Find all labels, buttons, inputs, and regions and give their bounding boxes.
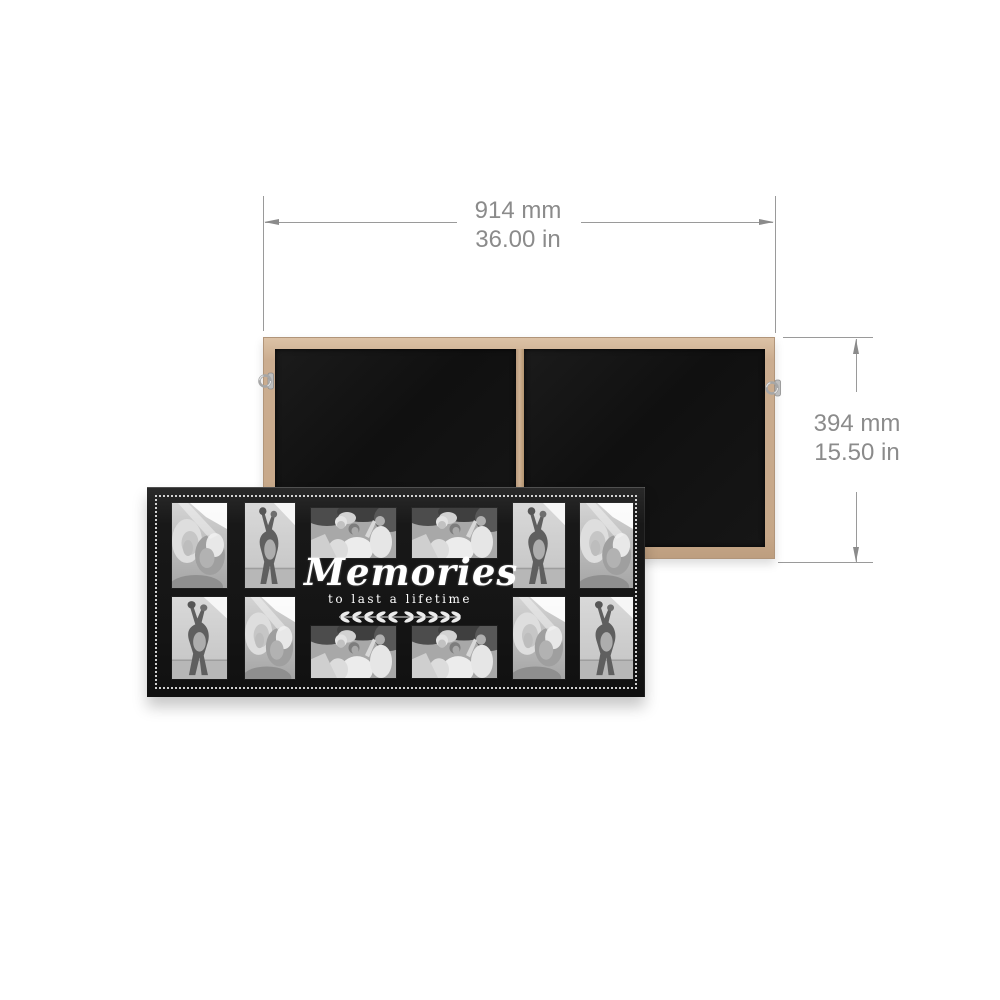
- height-label: 394 mm 15.50 in: [797, 409, 917, 467]
- photo-family: [412, 626, 497, 678]
- width-dimension-line-right: [581, 222, 773, 223]
- dancing-couple-photo-icon: [245, 503, 295, 588]
- two-women-photo-icon: [580, 503, 633, 588]
- height-arrow-down-icon: [853, 547, 859, 562]
- height-extension-line-top: [783, 337, 873, 338]
- frame-front-view: Memories to last a lifetime: [147, 487, 645, 697]
- height-metric: 394 mm: [797, 409, 917, 438]
- laurel-flourish-icon: [333, 609, 467, 625]
- dancing-couple-photo-icon: [172, 597, 227, 679]
- width-imperial: 36.00 in: [428, 225, 608, 254]
- photo-two-women: [172, 503, 227, 588]
- photo-two-women: [245, 597, 295, 679]
- photo-family: [311, 626, 396, 678]
- photo-two-women: [580, 503, 633, 588]
- photo-dancing-couple: [513, 503, 565, 588]
- caption-subtitle: to last a lifetime: [304, 592, 496, 606]
- family-photo-icon: [311, 626, 396, 678]
- height-imperial: 15.50 in: [797, 438, 917, 467]
- caption-title: Memories: [304, 553, 496, 591]
- width-extension-line-left: [263, 196, 264, 331]
- product-dimension-diagram: 914 mm 36.00 in 394 mm 15.50 in: [0, 0, 1000, 1000]
- dancing-couple-photo-icon: [513, 503, 565, 588]
- height-extension-line-bottom: [778, 562, 873, 563]
- two-women-photo-icon: [245, 597, 295, 679]
- family-photo-icon: [412, 626, 497, 678]
- caption: Memories to last a lifetime: [304, 553, 496, 630]
- hanging-hook-left-icon: [257, 364, 275, 398]
- photo-dancing-couple: [172, 597, 227, 679]
- photo-two-women: [513, 597, 565, 679]
- height-arrow-up-icon: [853, 339, 859, 354]
- dancing-couple-photo-icon: [580, 597, 633, 679]
- two-women-photo-icon: [513, 597, 565, 679]
- photo-dancing-couple: [580, 597, 633, 679]
- width-extension-line-right: [775, 196, 776, 333]
- two-women-photo-icon: [172, 503, 227, 588]
- width-metric: 914 mm: [428, 196, 608, 225]
- width-label: 914 mm 36.00 in: [428, 196, 608, 254]
- width-arrow-left-icon: [264, 219, 279, 225]
- hanging-hook-right-icon: [764, 371, 782, 405]
- photo-dancing-couple: [245, 503, 295, 588]
- width-arrow-right-icon: [759, 219, 774, 225]
